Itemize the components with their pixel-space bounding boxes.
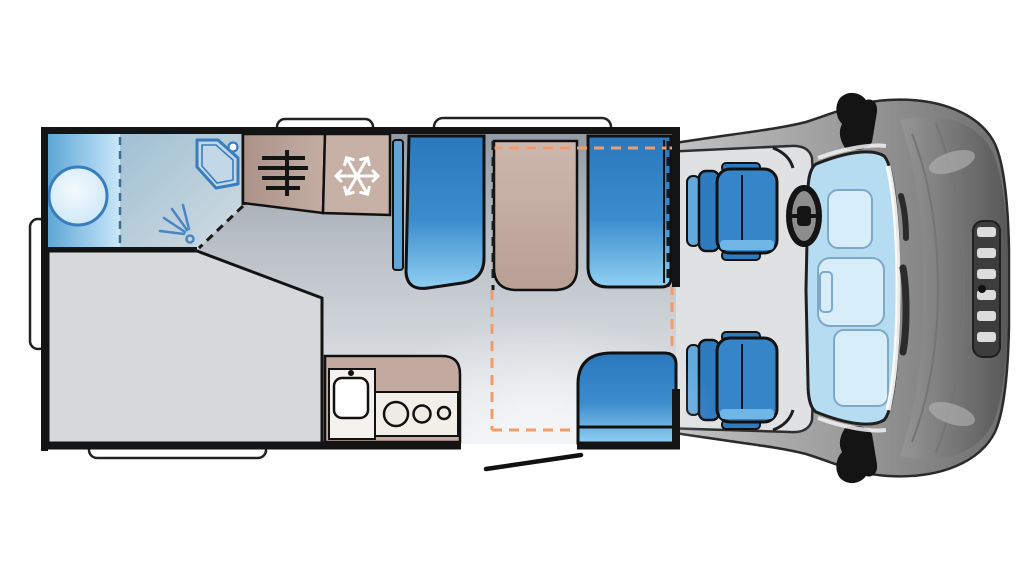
bench-seat-forward-facing	[588, 136, 671, 287]
kitchen	[325, 356, 460, 442]
bench-seat-rear-facing	[406, 136, 484, 288]
dinette	[393, 136, 671, 290]
dinette-table	[494, 141, 577, 290]
kitchen-sink-icon	[334, 378, 368, 418]
hob-burner-large	[384, 402, 408, 426]
toilet-icon	[49, 167, 107, 225]
hob-burner-small	[438, 407, 450, 419]
dashboard-panel	[834, 330, 888, 406]
wardrobe	[243, 134, 325, 213]
washroom	[41, 134, 244, 250]
bench-seat-side-panel	[393, 140, 403, 270]
windscreen	[806, 152, 899, 424]
wing-mirror-top-icon	[836, 93, 877, 150]
steering-wheel-icon	[789, 188, 819, 244]
driver-seat	[687, 163, 777, 260]
side-seat	[578, 353, 676, 443]
fridge	[323, 134, 390, 215]
dashboard-console	[818, 258, 884, 326]
floorplan-canvas	[0, 0, 1024, 576]
front-grille	[973, 221, 1000, 357]
floorplan-illustration	[0, 0, 1024, 576]
dashboard-cluster	[828, 190, 872, 248]
cowl-shadow	[903, 268, 906, 352]
wing-mirror-bottom-icon	[836, 426, 877, 483]
basin-tap-icon	[229, 143, 238, 152]
sink-tap-icon	[348, 370, 354, 376]
hob-burner-medium	[414, 406, 431, 423]
